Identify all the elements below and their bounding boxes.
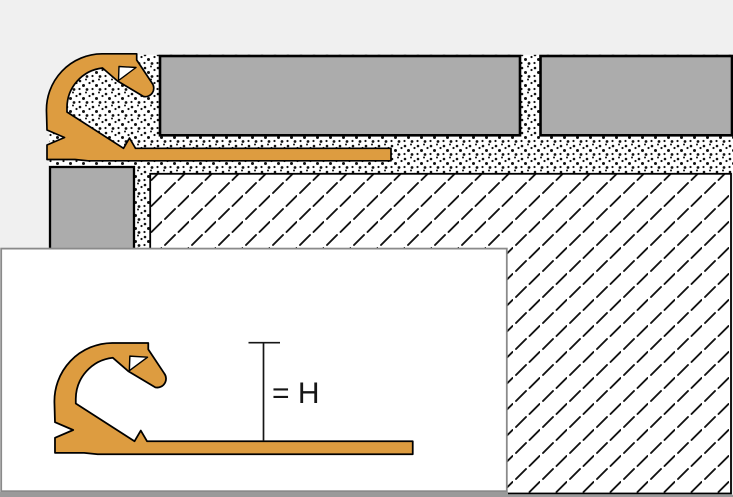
- height-dimension-label: = H: [272, 377, 320, 410]
- profile-installation-diagram: = H: [0, 0, 733, 497]
- tile-top-right: [541, 56, 733, 135]
- wall-mortar-strip-speckle: [135, 170, 150, 250]
- technical-drawing-svg: = H: [0, 0, 733, 497]
- wall-tile: [50, 167, 134, 250]
- tile-top-left: [160, 56, 520, 135]
